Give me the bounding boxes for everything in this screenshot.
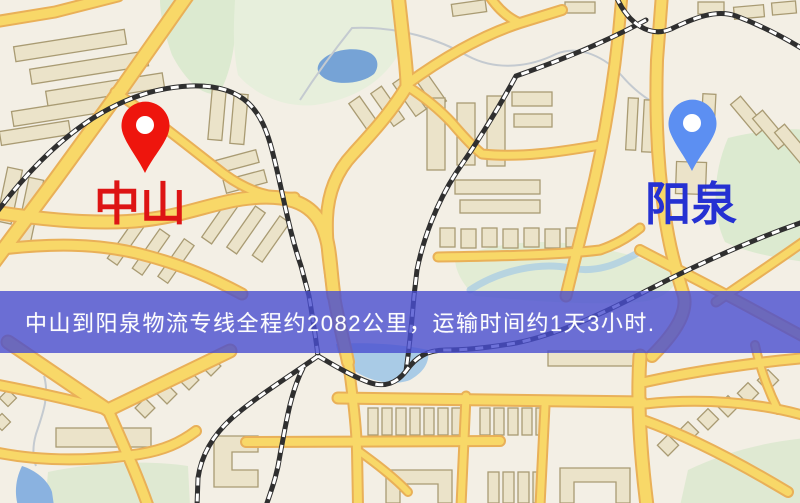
route-info-banner: 中山到阳泉物流专线全程约2082公里，运输时间约1天3小时.	[0, 291, 800, 353]
map-screenshot: 中山 阳泉 中山到阳泉物流专线全程约2082公里，运输时间约1天3小时.	[0, 0, 800, 503]
map-canvas: 中山 阳泉	[0, 0, 800, 503]
route-info-text: 中山到阳泉物流专线全程约2082公里，运输时间约1天3小时.	[25, 306, 656, 338]
origin-pin-hole	[136, 116, 154, 134]
destination-pin-hole	[683, 114, 701, 132]
destination-label: 阳泉	[645, 178, 737, 230]
origin-label: 中山	[94, 178, 186, 230]
